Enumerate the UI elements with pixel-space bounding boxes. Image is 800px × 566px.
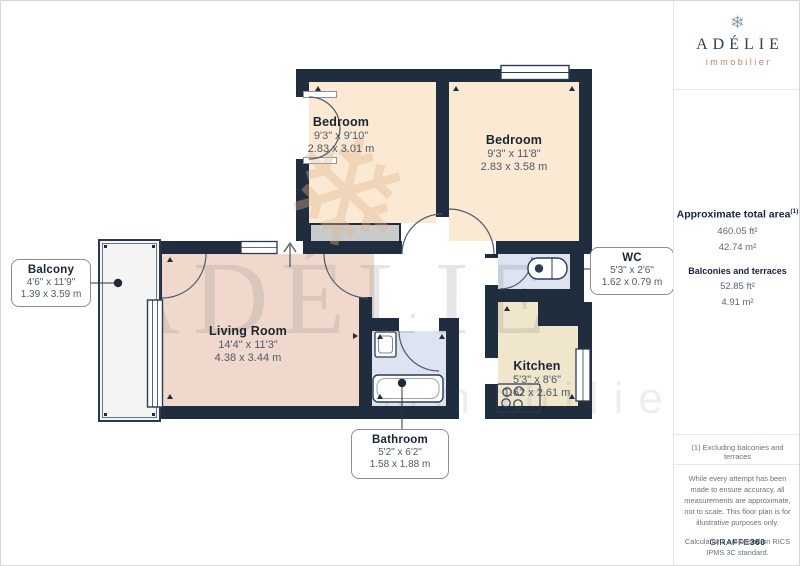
room-label-kitchen: Kitchen 5'3" x 8'6" 1.62 x 2.61 m — [504, 359, 571, 399]
wall — [496, 241, 592, 254]
callout-balcony: Balcony 4'6" x 11'9" 1.39 x 3.59 m — [11, 259, 91, 307]
brand-logo: ❄ ADÉLIE immobilier — [674, 14, 800, 67]
snowflake-icon: ❄ — [674, 14, 800, 31]
callout-wc: WC 5'3" x 2'6" 1.62 x 0.79 m — [590, 247, 674, 295]
door-frame — [303, 157, 337, 164]
info-sidebar: ❄ ADÉLIE immobilier Approximate total ar… — [673, 1, 800, 565]
total-area-ft: 460.05 ft² — [674, 226, 800, 237]
balconies-m: 4.91 m² — [674, 297, 800, 308]
wall — [485, 406, 592, 419]
area-summary: Approximate total area(1) 460.05 ft² 42.… — [674, 208, 800, 308]
corner-mark — [104, 413, 107, 416]
divider — [674, 434, 800, 435]
brand-tagline: immobilier — [674, 57, 800, 67]
callout-bathroom: Bathroom 5'2" x 6'2" 1.58 x 1.88 m — [351, 429, 449, 479]
wall — [578, 302, 592, 419]
wall — [485, 289, 584, 302]
wall — [570, 254, 584, 289]
wall — [296, 159, 309, 254]
divider — [674, 464, 800, 465]
balcony-railing — [102, 243, 157, 418]
wall — [485, 302, 498, 358]
giraffe360-credit: GIRAFFE360 — [674, 537, 800, 547]
room-label-bedroom-2: Bedroom 9'3" x 11'8" 2.83 x 3.58 m — [481, 133, 548, 173]
room-label-living-room: Living Room 14'4" x 11'3" 4.38 x 3.44 m — [209, 324, 287, 364]
corner-mark — [152, 413, 155, 416]
area-footnote: (1) Excluding balconies and terraces — [674, 443, 800, 461]
wall — [359, 297, 372, 419]
wall — [149, 406, 459, 419]
door-frame — [303, 91, 337, 98]
door-opening — [485, 258, 498, 285]
door-opening — [399, 318, 439, 331]
wall — [303, 241, 402, 254]
balconies-label: Balconies and terraces — [674, 266, 800, 276]
wall — [579, 82, 592, 254]
room-label-bedroom-1: Bedroom 9'3" x 9'10" 2.83 x 3.01 m — [308, 115, 375, 155]
disclaimer-text: While every attempt has been made to ens… — [674, 473, 800, 565]
divider — [674, 89, 800, 90]
balcony-area — [98, 239, 161, 422]
entrance-opening — [277, 241, 303, 254]
wall — [436, 82, 449, 217]
total-area-label: Approximate total area(1) — [674, 208, 800, 221]
wall — [446, 318, 459, 419]
floorplan-page: ADÉLIE immobilier — [0, 0, 800, 566]
corner-mark — [104, 245, 107, 248]
wall — [149, 241, 241, 254]
wall — [296, 69, 592, 82]
corner-mark — [152, 245, 155, 248]
balconies-ft: 52.85 ft² — [674, 281, 800, 292]
brand-name: ADÉLIE — [674, 36, 800, 54]
total-area-m: 42.74 m² — [674, 242, 800, 253]
